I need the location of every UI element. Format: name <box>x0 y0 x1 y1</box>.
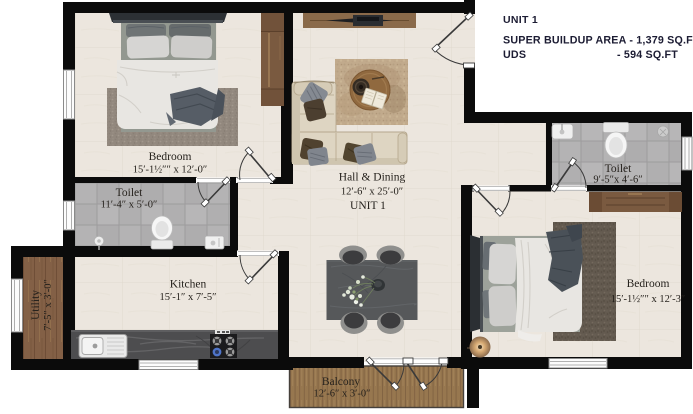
svg-text:Kitchen: Kitchen <box>170 279 207 291</box>
svg-text:Hall & Dining: Hall & Dining <box>339 172 406 184</box>
svg-text:15′-1½″″ x 12′-0″: 15′-1½″″ x 12′-0″ <box>133 165 208 176</box>
svg-text:Bedroom: Bedroom <box>149 151 192 163</box>
svg-text:Toilet: Toilet <box>605 163 632 175</box>
svg-text:Toilet: Toilet <box>116 187 143 199</box>
svg-text:7′-5″ x 3′-0″: 7′-5″ x 3′-0″ <box>43 279 54 331</box>
svg-text:Balcony: Balcony <box>322 376 361 388</box>
svg-text:UNIT 1: UNIT 1 <box>503 14 538 26</box>
svg-text:15′-1″ x 7′-5″: 15′-1″ x 7′-5″ <box>159 292 216 303</box>
svg-text:UNIT 1: UNIT 1 <box>350 200 386 212</box>
svg-text:Bedroom: Bedroom <box>627 278 670 290</box>
svg-text:UDS: UDS <box>503 49 526 61</box>
svg-text:SUPER BUILDUP AREA - 1,379 SQ.: SUPER BUILDUP AREA - 1,379 SQ.FT <box>503 35 693 47</box>
svg-text:11′-4″ x 5′-0″: 11′-4″ x 5′-0″ <box>101 200 158 211</box>
svg-text:Utility: Utility <box>30 290 42 320</box>
svg-text:- 594 SQ.FT: - 594 SQ.FT <box>617 49 678 61</box>
svg-text:9′-5″x 4′-6″: 9′-5″x 4′-6″ <box>593 175 642 186</box>
svg-text:12′-6″ x 25′-0″: 12′-6″ x 25′-0″ <box>341 187 403 198</box>
svg-text:15′-1½″″ x 12′-3″: 15′-1½″″ x 12′-3″ <box>611 294 686 305</box>
svg-text:12′-6″ x 3′-0″: 12′-6″ x 3′-0″ <box>313 389 370 400</box>
